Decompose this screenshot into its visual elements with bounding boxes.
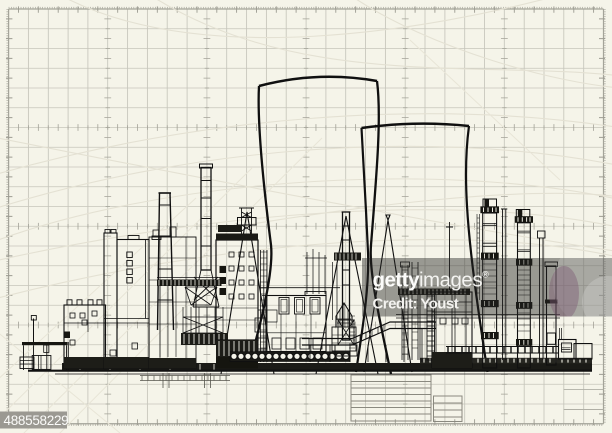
svg-text:488558229: 488558229 [4, 413, 69, 428]
svg-text:Credit: Youst: Credit: Youst [373, 296, 459, 313]
svg-text:gettyimages®: gettyimages® [373, 269, 490, 292]
